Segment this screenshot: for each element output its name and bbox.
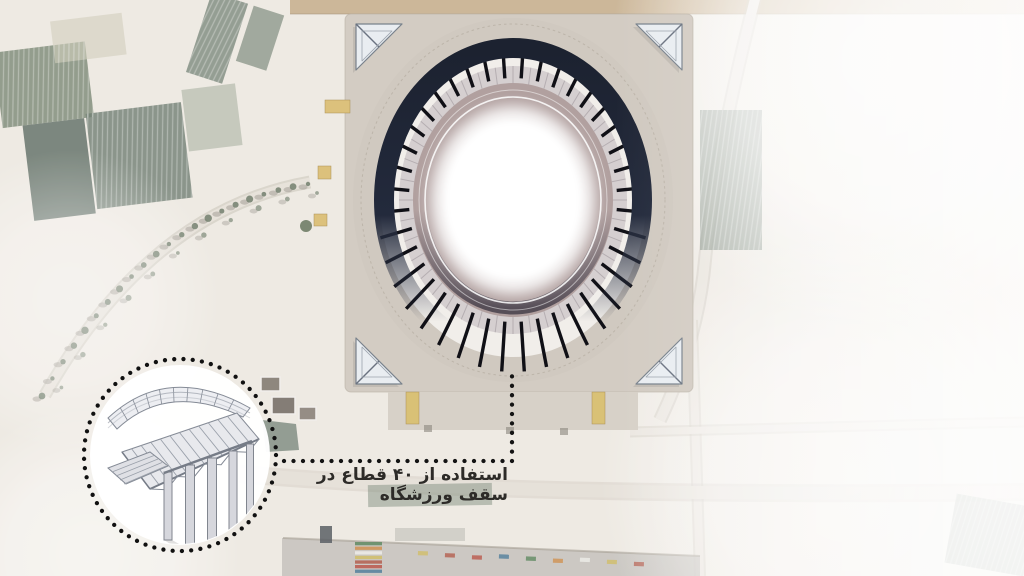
annotation-caption: استفاده از ۴۰ قطاع در سقف ورزشگاه <box>278 465 508 506</box>
slide-canvas: استفاده از ۴۰ قطاع در سقف ورزشگاه <box>0 0 1024 576</box>
satellite-image <box>0 0 1024 576</box>
